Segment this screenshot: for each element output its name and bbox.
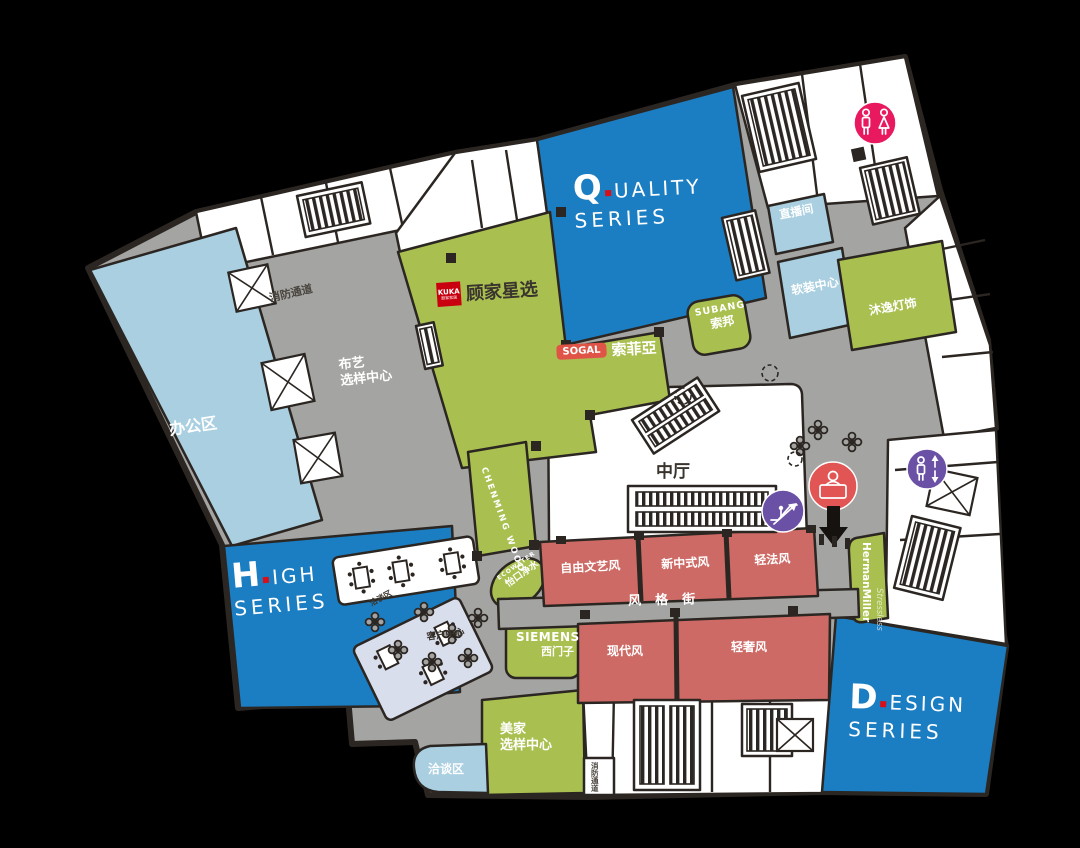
red-dot: [263, 577, 270, 584]
quality-series-label: QUALITY SERIES: [572, 165, 704, 231]
siemens-label: SIEMENS 西门子: [516, 630, 574, 659]
elevator-box: [228, 264, 275, 311]
elevator-box: [261, 354, 314, 410]
style-room-label: 轻法风: [742, 551, 803, 569]
lounge-south-label: 洽谈区: [428, 762, 464, 777]
escalator-icon: [762, 490, 804, 532]
restroom-icon: [854, 102, 896, 144]
style-room-label: 轻奢风: [716, 640, 782, 655]
escalator-south: [634, 700, 700, 790]
stressless-label: Stressless: [873, 588, 884, 631]
kuka-logo: KUKA 顾家家居: [436, 281, 462, 307]
kuka-name: 顾家星选: [465, 275, 539, 306]
room-fire-passage-south: [584, 758, 614, 795]
escalator-atrium-main: [628, 486, 776, 532]
elevator-icon: [907, 449, 947, 489]
fire-passage-south-label: 消防通道: [590, 762, 598, 794]
design-series-label: DESIGN SERIES: [848, 680, 967, 744]
elevator-box: [293, 433, 342, 484]
zone-chenming-strip: [468, 442, 536, 556]
sogal-name: 索菲亞: [611, 337, 657, 360]
sogal-logo: SOGAL: [556, 342, 607, 360]
style-room-label: 现代风: [592, 644, 658, 659]
style-street-label: 风格街: [628, 592, 709, 610]
fabric-center-label: 布艺 选样中心: [338, 353, 393, 391]
zone-muyi-lighting: [838, 241, 956, 350]
floorplan-canvas: QUALITY SERIES HIGH SERIES DESIGN SERIES…: [0, 0, 1080, 848]
red-dot: [605, 190, 611, 196]
atrium-label: 中厅: [656, 462, 690, 482]
home-sample-label: 美家 选样中心: [500, 722, 552, 755]
elevator-box: [777, 719, 813, 751]
information-icon: [809, 462, 857, 510]
herman-miller-label: HermanMiller: [859, 542, 872, 622]
red-dot: [880, 701, 886, 707]
high-series-label: HIGH SERIES: [230, 552, 329, 620]
